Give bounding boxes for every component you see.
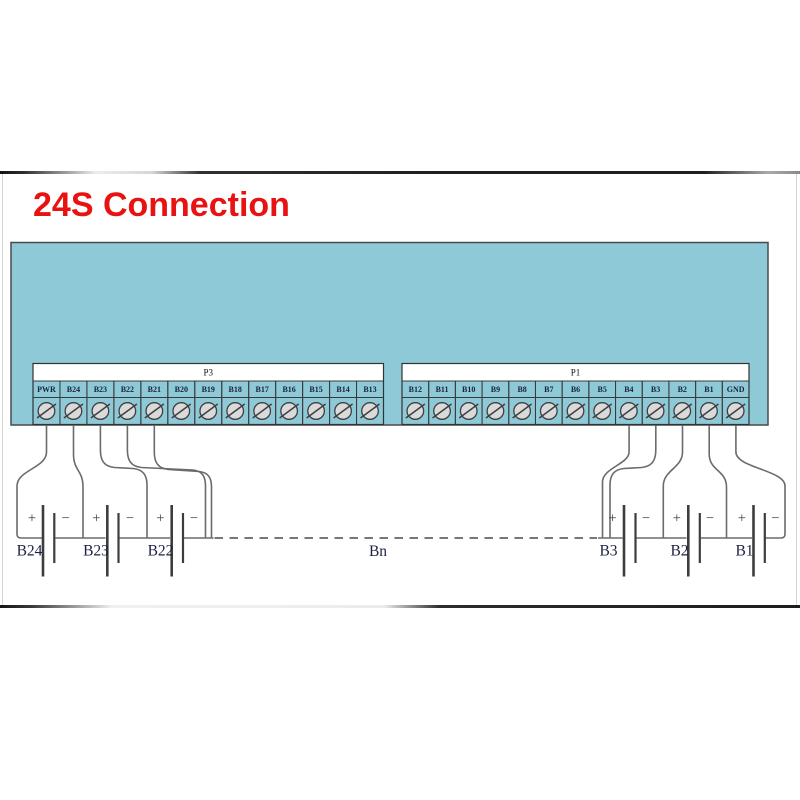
battery-cell-symbol: +− xyxy=(92,505,134,577)
screw-terminal-icon xyxy=(513,403,532,420)
screw-terminal-icon xyxy=(253,403,272,420)
battery-cell-symbol: +− xyxy=(28,505,70,577)
battery-cell-symbol: +− xyxy=(608,505,650,577)
battery-cell-symbol: +− xyxy=(673,505,714,577)
screw-terminal-icon xyxy=(726,403,745,420)
wiring-diagram: P3PWRB24B23B22B21B20B19B18B17B16B15B14B1… xyxy=(0,0,800,800)
minus-sign: − xyxy=(771,511,779,527)
battery-cell-symbol: +− xyxy=(738,505,780,577)
plus-sign: + xyxy=(673,511,681,527)
terminal-label: B4 xyxy=(624,385,633,394)
screw-terminal-icon xyxy=(334,403,353,420)
screw-terminal-icon xyxy=(226,403,245,420)
screw-terminal-icon xyxy=(307,403,326,420)
terminal-label: B1 xyxy=(704,385,713,394)
terminal-label: B5 xyxy=(598,385,607,394)
terminal-label: B23 xyxy=(94,385,107,394)
screw-terminal-icon xyxy=(566,403,585,420)
terminal-label: B20 xyxy=(175,385,188,394)
battery-label-B3: B3 xyxy=(599,543,617,560)
battery-label-elided: Bn xyxy=(369,543,387,560)
terminal-label: B2 xyxy=(678,385,687,394)
minus-sign: − xyxy=(190,511,198,527)
minus-sign: − xyxy=(642,511,650,527)
battery-label-B22: B22 xyxy=(148,543,174,560)
terminal-label: B12 xyxy=(409,385,422,394)
connector-name-label: P1 xyxy=(571,368,581,378)
screw-terminal-icon xyxy=(361,403,380,420)
battery-label-B23: B23 xyxy=(83,543,109,560)
terminal-label: B16 xyxy=(282,385,295,394)
screw-terminal-icon xyxy=(145,403,164,420)
terminal-label: B8 xyxy=(517,385,526,394)
screw-terminal-icon xyxy=(593,403,612,420)
plus-sign: + xyxy=(28,511,36,527)
plus-sign: + xyxy=(92,511,100,527)
terminal-label: B10 xyxy=(462,385,475,394)
screw-terminal-icon xyxy=(406,403,425,420)
screw-terminal-icon xyxy=(118,403,137,420)
terminal-label: GND xyxy=(727,385,745,394)
terminal-label: B13 xyxy=(363,385,376,394)
plus-sign: + xyxy=(156,511,164,527)
battery-layer: +−+−+−+−+−+−B24B23B22B3B2B1Bn xyxy=(17,505,780,577)
page: { "title": { "text": "24S Connection", "… xyxy=(0,0,800,800)
terminal-label: B24 xyxy=(67,385,80,394)
terminal-label: B19 xyxy=(202,385,215,394)
battery-label-B24: B24 xyxy=(17,543,43,560)
terminal-label: B15 xyxy=(309,385,322,394)
screw-terminal-icon xyxy=(64,403,83,420)
minus-sign: − xyxy=(706,511,714,527)
terminal-label: B14 xyxy=(336,385,349,394)
minus-sign: − xyxy=(126,511,134,527)
plus-sign: + xyxy=(608,511,616,527)
screw-terminal-icon xyxy=(91,403,110,420)
screw-terminal-icon xyxy=(619,403,638,420)
screw-terminal-icon xyxy=(459,403,478,420)
screw-terminal-icon xyxy=(646,403,665,420)
screw-terminal-icon xyxy=(199,403,218,420)
terminal-label: B6 xyxy=(571,385,580,394)
terminal-label: B9 xyxy=(491,385,500,394)
screw-terminal-icon xyxy=(673,403,692,420)
wire-B24 xyxy=(74,425,84,539)
screw-terminal-icon xyxy=(37,403,56,420)
terminal-label: B18 xyxy=(229,385,242,394)
battery-cell-symbol: +− xyxy=(156,505,198,577)
screw-terminal-icon xyxy=(539,403,558,420)
battery-label-B1: B1 xyxy=(735,543,753,560)
battery-label-B2: B2 xyxy=(670,543,688,560)
screw-terminal-icon xyxy=(280,403,299,420)
minus-sign: − xyxy=(62,511,70,527)
screw-terminal-icon xyxy=(433,403,452,420)
terminal-label: PWR xyxy=(37,385,56,394)
plus-sign: + xyxy=(738,511,746,527)
terminal-label: B21 xyxy=(148,385,161,394)
terminal-label: B3 xyxy=(651,385,660,394)
terminal-label: B22 xyxy=(121,385,134,394)
terminal-label: B7 xyxy=(544,385,553,394)
screw-terminal-icon xyxy=(172,403,191,420)
terminal-label: B17 xyxy=(256,385,269,394)
terminal-label: B11 xyxy=(436,385,449,394)
connector-name-label: P3 xyxy=(203,368,213,378)
screw-terminal-icon xyxy=(486,403,505,420)
screw-terminal-icon xyxy=(699,403,718,420)
